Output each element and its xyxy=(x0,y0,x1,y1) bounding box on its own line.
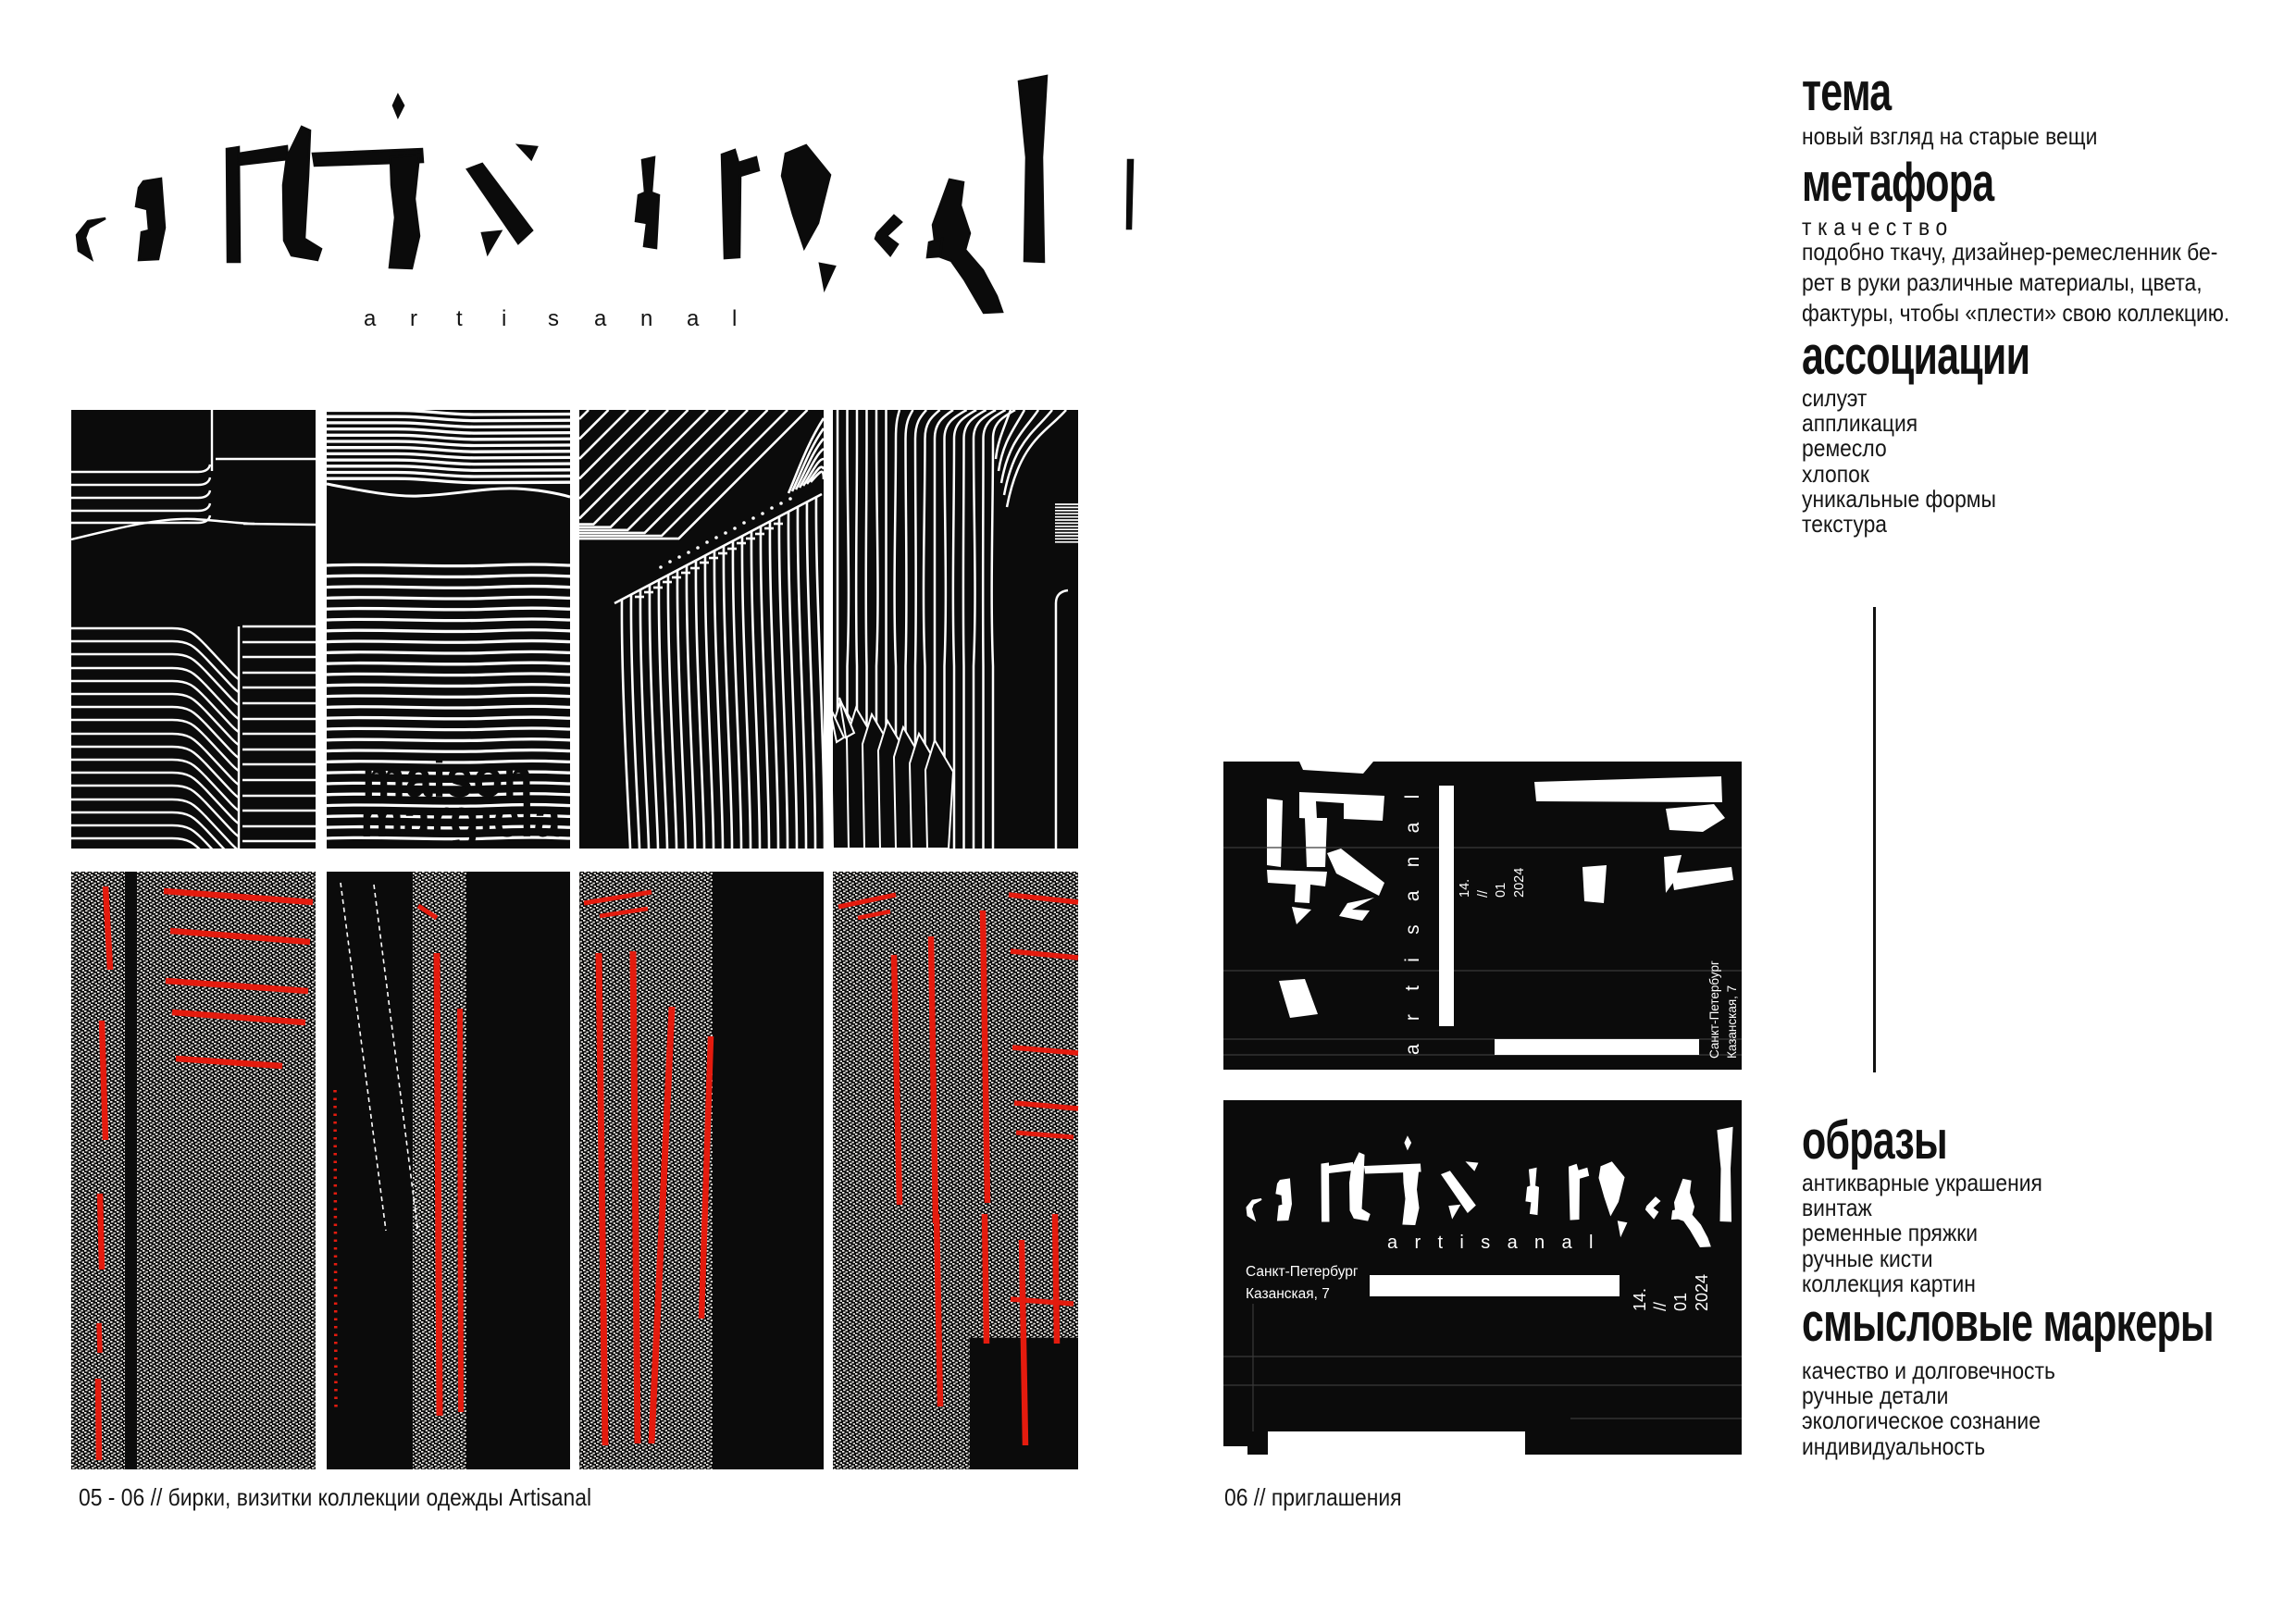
svg-text:a: a xyxy=(594,306,607,331)
svg-text:Санкт-Петербург: Санкт-Петербург xyxy=(1707,960,1721,1059)
svg-text:Санкт-Петербург: Санкт-Петербург xyxy=(1246,1264,1359,1280)
svg-text://: // xyxy=(1476,889,1491,898)
svg-text:01: 01 xyxy=(1494,883,1508,898)
svg-text:14.: 14. xyxy=(1631,1288,1649,1311)
svg-text:01: 01 xyxy=(1671,1293,1690,1311)
svg-text:2024: 2024 xyxy=(1512,868,1527,898)
svg-text:2024: 2024 xyxy=(1693,1274,1711,1311)
svg-text:Казанская, 7: Казанская, 7 xyxy=(1725,985,1739,1059)
svg-text:s: s xyxy=(548,306,559,331)
svg-text:a r t i s a n a l: a r t i s a n a l xyxy=(1387,1233,1599,1253)
svg-text:Казанская, 7: Казанская, 7 xyxy=(1246,1286,1330,1302)
svg-text:a: a xyxy=(364,306,377,331)
svg-text://: // xyxy=(1651,1302,1669,1311)
svg-text:14.: 14. xyxy=(1458,879,1472,898)
svg-text:n: n xyxy=(640,306,652,331)
svg-text:t: t xyxy=(456,306,463,331)
svg-text:a r t i s a n a l: a r t i s a n a l xyxy=(1402,786,1423,1055)
svg-text:l: l xyxy=(732,306,737,331)
svg-text:r: r xyxy=(410,306,417,331)
svg-text:a: a xyxy=(687,306,700,331)
svg-text:margiela: margiela xyxy=(360,788,562,849)
svg-text:i: i xyxy=(502,306,506,331)
